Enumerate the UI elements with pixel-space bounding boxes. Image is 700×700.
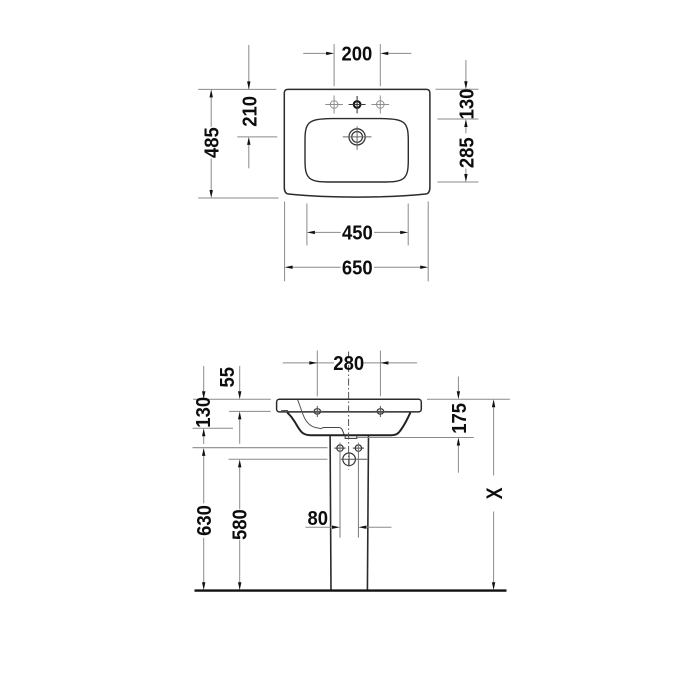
- svg-text:175: 175: [448, 403, 471, 434]
- svg-text:580: 580: [229, 509, 252, 540]
- svg-text:55: 55: [216, 367, 239, 388]
- svg-text:280: 280: [333, 352, 364, 375]
- svg-text:130: 130: [192, 397, 215, 428]
- svg-text:630: 630: [193, 505, 216, 536]
- svg-text:X: X: [483, 487, 507, 499]
- svg-text:450: 450: [342, 222, 373, 245]
- svg-text:200: 200: [342, 43, 373, 66]
- svg-text:130: 130: [456, 88, 479, 119]
- svg-text:485: 485: [201, 127, 224, 158]
- svg-text:80: 80: [308, 507, 329, 530]
- svg-text:650: 650: [342, 257, 373, 280]
- svg-text:285: 285: [456, 137, 479, 168]
- svg-text:210: 210: [239, 96, 262, 127]
